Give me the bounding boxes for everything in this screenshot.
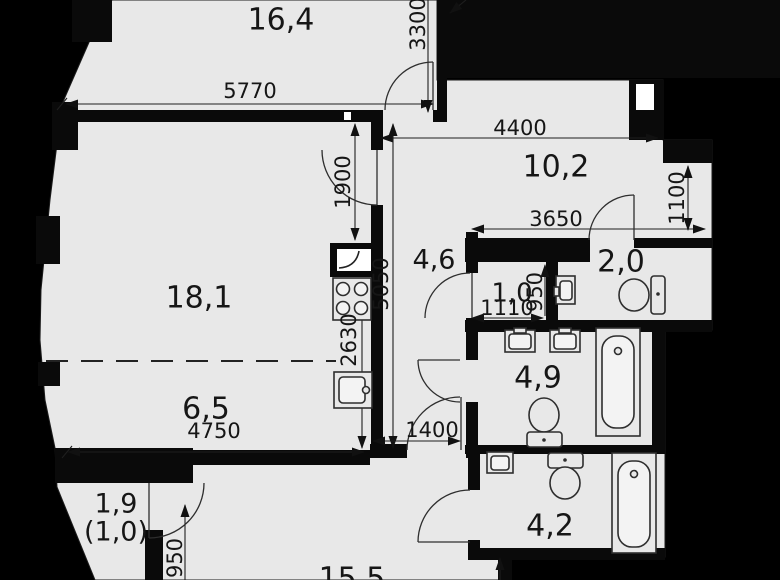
dim-label-5770: 5770 <box>223 79 276 103</box>
wall-facade-pilaster-3 <box>36 216 60 264</box>
wall-18-1-right-lower <box>371 205 383 450</box>
dim-label-950-balcony: 950 <box>163 538 187 578</box>
room-label-18-1: 18,1 <box>166 281 233 316</box>
wall-4-2-left-upper <box>468 454 480 490</box>
wall-facade-pilaster-2 <box>52 102 78 150</box>
room-label-10-2: 10,2 <box>523 150 590 185</box>
shaft-notch <box>636 84 654 110</box>
toilet-icon <box>548 453 583 499</box>
washbasin-icon <box>505 328 535 352</box>
dim-label-5050: 5050 <box>369 257 393 310</box>
dim-label-1400: 1400 <box>405 418 458 442</box>
wall-16-4-bottom <box>58 110 383 122</box>
wall-above-wc <box>634 238 712 248</box>
bathtub-icon <box>612 453 656 553</box>
washbasin-icon <box>554 276 575 304</box>
room-label-2-0: 2,0 <box>597 245 645 280</box>
toilet-icon <box>619 276 665 314</box>
wall-corridor-bottom <box>370 444 407 458</box>
wall-recess-top <box>663 140 712 163</box>
bathtub-icon <box>596 328 640 436</box>
wall-corridor-right-b <box>466 318 478 360</box>
wall-16-4-right <box>437 78 447 118</box>
wall-15-5-top-chunk <box>55 448 193 483</box>
washbasin-icon <box>487 452 513 473</box>
wall-4-9-right <box>652 330 665 445</box>
wall-18-1-right-upper <box>371 110 383 150</box>
toilet-icon <box>527 398 562 447</box>
wall-facade-pilaster-4 <box>38 362 60 386</box>
room-label-16-4: 16,4 <box>248 3 315 38</box>
floor-plan-svg: 16,4 18,1 6,5 10,2 4,6 1,0 2,0 4,9 4,2 1… <box>0 0 780 580</box>
dim-label-4750: 4750 <box>187 419 240 443</box>
dim-label-3300: 3300 <box>406 0 430 51</box>
kitchen-sink-icon <box>334 372 372 408</box>
washbasin-icon <box>550 328 580 352</box>
wall-above-storage <box>465 238 590 262</box>
wall-below-storage-wc <box>465 320 712 332</box>
floor-plan-canvas: 16,4 18,1 6,5 10,2 4,6 1,0 2,0 4,9 4,2 1… <box>0 0 780 580</box>
jamb-mark-16-4 <box>344 112 351 120</box>
dim-label-4400: 4400 <box>493 116 546 140</box>
dim-label-1110: 1110 <box>480 296 533 320</box>
room-label-balcony-1-9: 1,9 <box>95 489 138 520</box>
wall-corridor-right-a <box>466 232 478 273</box>
dim-label-1100: 1100 <box>665 171 689 224</box>
room-label-15-5: 15,5 <box>319 562 386 580</box>
room-label-4-6: 4,6 <box>413 245 456 276</box>
room-label-4-2: 4,2 <box>526 509 574 544</box>
room-label-4-9: 4,9 <box>514 361 562 396</box>
dim-label-1900: 1900 <box>331 155 355 208</box>
dim-label-3650: 3650 <box>529 207 582 231</box>
wall-adjacent-block-top-right <box>437 0 780 78</box>
dim-label-2630: 2630 <box>337 313 361 366</box>
wall-facade-pilaster-1 <box>72 0 112 42</box>
room-label-balcony-reduced: (1,0) <box>84 517 148 548</box>
